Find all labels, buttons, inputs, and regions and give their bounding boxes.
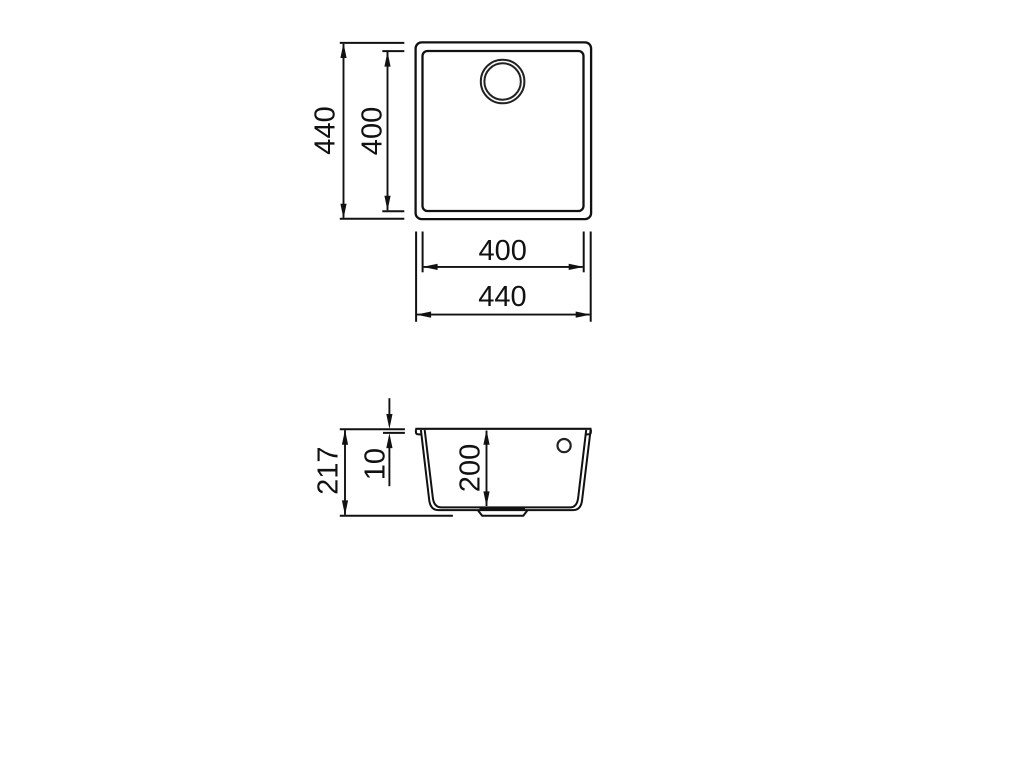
svg-text:400: 400	[479, 235, 527, 267]
svg-text:200: 200	[454, 444, 486, 492]
svg-text:10: 10	[359, 448, 391, 480]
svg-text:217: 217	[312, 447, 344, 495]
svg-text:440: 440	[309, 106, 341, 154]
svg-text:440: 440	[478, 281, 526, 313]
svg-text:400: 400	[356, 107, 388, 155]
